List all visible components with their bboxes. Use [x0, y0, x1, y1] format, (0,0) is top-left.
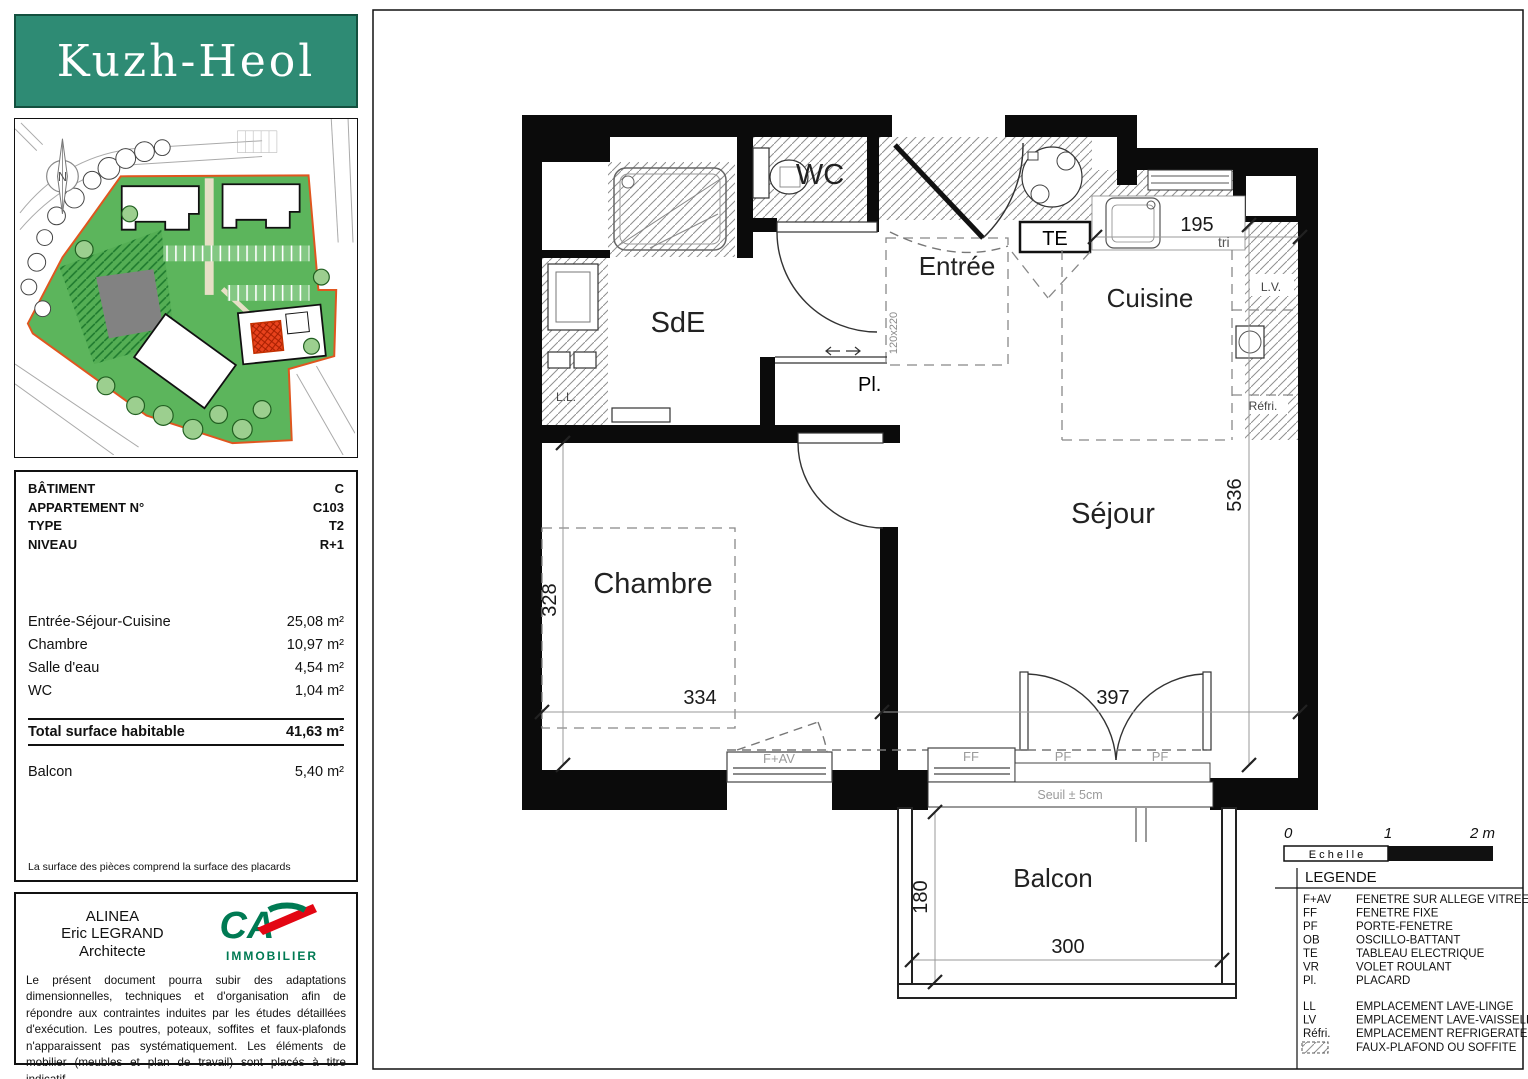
scale-label: E c h e l l e: [1309, 849, 1363, 861]
legend-abbr-refri: Réfri.: [1303, 1028, 1330, 1040]
legend-desc-fav: FENETRE SUR ALLEGE VITREE: [1356, 894, 1528, 906]
balcony-row: Balcon 5,40 m²: [28, 764, 344, 780]
dim-sejour-height: 536: [1224, 478, 1246, 511]
areas-table: Entrée-Séjour-Cuisine25,08 m² Chambre10,…: [28, 611, 344, 703]
pf-sill: [1015, 763, 1210, 782]
architect-box: ALINEA Eric LEGRAND Architecte CA IMMOBI…: [14, 892, 358, 1065]
scale-bar: 0 1 2 m E c h e l l e: [1284, 825, 1495, 861]
dim-cuisine-width: 195: [1180, 214, 1213, 236]
legend-desc-vr: VOLET ROULANT: [1356, 962, 1452, 974]
spec-row-appartement: APPARTEMENT N°C103: [28, 499, 344, 518]
room-label-entree: Entrée: [919, 251, 996, 281]
brand-logo-box: Kuzh-Heol: [14, 14, 358, 108]
compass-north: N: [58, 169, 67, 184]
scale-1: 1: [1384, 825, 1392, 842]
legend-title: LEGENDE: [1305, 869, 1377, 886]
room-label-cuisine: Cuisine: [1107, 283, 1194, 313]
legend-abbr-vr: VR: [1303, 962, 1319, 974]
legend-desc-ob: OSCILLO-BATTANT: [1356, 935, 1460, 947]
legend-abbr-ff: FF: [1303, 908, 1317, 920]
legend-hatch-icon: [1302, 1042, 1328, 1053]
scale-2m: 2 m: [1469, 825, 1495, 842]
area-row: Entrée-Séjour-Cuisine25,08 m²: [28, 611, 344, 634]
balcony-french-doors: [1020, 672, 1211, 760]
spec-row-niveau: NIVEAUR+1: [28, 536, 344, 555]
legend-desc-fauxplafond: FAUX-PLAFOND OU SOFFITE: [1356, 1042, 1517, 1054]
chambre-door: [798, 433, 883, 528]
legend-abbr-ob: OB: [1303, 935, 1320, 947]
legend-desc-pf: PORTE-FENETRE: [1356, 921, 1453, 933]
label-lave-linge: L.L.: [556, 390, 576, 404]
spec-row-type: TYPET2: [28, 517, 344, 536]
room-label-sejour: Séjour: [1071, 498, 1155, 530]
legend: LEGENDE F+AV FENETRE SUR ALLEGE VITREE F…: [1275, 868, 1528, 1069]
legend-desc-lv: EMPLACEMENT LAVE-VAISSELLE: [1356, 1015, 1528, 1027]
label-seuil: Seuil ± 5cm: [1037, 788, 1102, 802]
dim-sejour-width: 397: [1096, 687, 1129, 709]
label-pf1: PF: [1055, 749, 1072, 764]
kitchen-window: [1148, 170, 1232, 190]
room-label-balcon: Balcon: [1013, 863, 1093, 893]
label-door-size: 120x220: [888, 312, 900, 354]
dim-balcon-width: 300: [1051, 936, 1084, 958]
legend-abbr-ll: LL: [1303, 1001, 1316, 1013]
total-surface-row: Total surface habitable 41,63 m²: [28, 718, 344, 746]
label-ff: FF: [963, 749, 979, 764]
apartment-info-box: BÂTIMENTC APPARTEMENT N°C103 TYPET2 NIVE…: [14, 470, 358, 882]
bottom-windows: [727, 722, 1213, 842]
dim-chambre-width: 334: [683, 687, 716, 709]
disclaimer-text: Le présent document pourra subir des ada…: [26, 973, 346, 1079]
dim-balcon-depth: 180: [910, 880, 932, 913]
water-heater: [1022, 147, 1082, 207]
label-placard: Pl.: [858, 374, 881, 396]
wc-door: [777, 222, 877, 332]
room-label-wc: WC: [796, 159, 844, 191]
legend-abbr-lv: LV: [1303, 1015, 1317, 1027]
placard-sliding-door: [775, 347, 887, 363]
area-row: WC1,04 m²: [28, 680, 344, 703]
balcony-rails: [898, 808, 1236, 998]
label-pf2: PF: [1152, 749, 1169, 764]
spec-table: BÂTIMENTC APPARTEMENT N°C103 TYPET2 NIVE…: [28, 480, 344, 554]
legend-abbr-te: TE: [1303, 948, 1318, 960]
highlighted-apartment: [251, 321, 284, 354]
building-c: [238, 305, 326, 365]
surface-note: La surface des pièces comprend la surfac…: [28, 861, 291, 873]
dim-chambre-height: 328: [539, 583, 561, 616]
legend-desc-refri: EMPLACEMENT REFRIGERATEUR: [1356, 1028, 1528, 1040]
legend-abbr-pf: PF: [1303, 921, 1318, 933]
label-lave-vaisselle: L.V.: [1261, 280, 1281, 294]
room-label-chambre: Chambre: [593, 568, 712, 600]
scale-0: 0: [1284, 825, 1293, 842]
architect-names: ALINEA Eric LEGRAND Architecte: [26, 908, 199, 961]
site-plan-box: N: [14, 118, 358, 458]
label-tri: tri: [1218, 234, 1230, 250]
ca-immobilier-logo: CA IMMOBILIER: [199, 902, 346, 966]
legend-abbr-fav: F+AV: [1303, 894, 1332, 906]
room-label-sde: SdE: [651, 307, 706, 339]
area-row: Chambre10,97 m²: [28, 634, 344, 657]
area-row: Salle d'eau4,54 m²: [28, 657, 344, 680]
floorplan-document: 334 397 328 536 195 180 300 SdE WC Entré…: [0, 0, 1528, 1079]
label-fav: F+AV: [763, 751, 795, 766]
label-te: TE: [1042, 228, 1068, 250]
spec-row-batiment: BÂTIMENTC: [28, 480, 344, 499]
site-plan-map: N: [15, 119, 355, 455]
legend-desc-ff: FENETRE FIXE: [1356, 908, 1439, 920]
legend-desc-pl: PLACARD: [1356, 975, 1410, 987]
legend-abbr-pl: Pl.: [1303, 975, 1316, 987]
radiator: [612, 408, 670, 422]
legend-desc-ll: EMPLACEMENT LAVE-LINGE: [1356, 1001, 1514, 1013]
legend-desc-te: TABLEAU ELECTRIQUE: [1356, 948, 1485, 960]
ca-logo-green-arc: [269, 906, 305, 911]
brand-logo-text: Kuzh-Heol: [57, 36, 316, 87]
label-refrigerateur: Réfri.: [1249, 399, 1278, 413]
ca-logo-sub: IMMOBILIER: [226, 949, 318, 963]
